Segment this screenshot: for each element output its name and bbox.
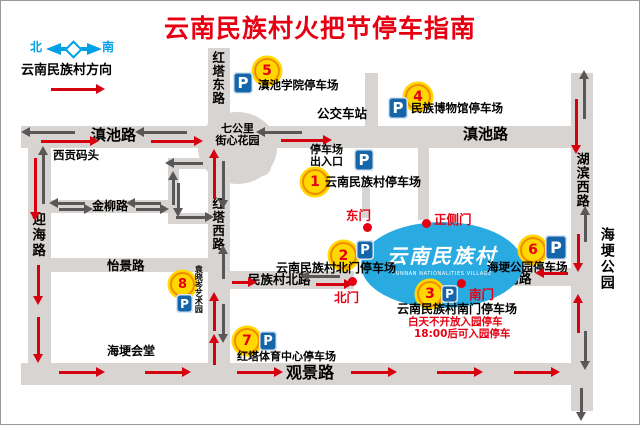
arrow-west-icon (308, 275, 340, 278)
roundabout-label: 七公里 街心花园 (198, 123, 277, 146)
arrow-north-icon (584, 214, 587, 242)
landmark-bus-station: 公交车站 (317, 107, 367, 120)
front-gate-label: 正侧门 (434, 213, 472, 226)
parking-1-label: 云南民族村停车场 (325, 176, 421, 189)
arrow-east-icon (316, 283, 345, 286)
parking-2-icon: P (356, 240, 374, 260)
arrow-north-icon (172, 179, 175, 205)
arrow-south-icon (222, 161, 225, 201)
direction-arrow-icon (51, 88, 97, 91)
parking-7-label: 红塔体育中心停车场 (237, 351, 336, 363)
parking-4-icon: P (388, 97, 408, 119)
arrow-south-icon (37, 317, 40, 355)
arrow-north-icon (222, 253, 225, 279)
arrow-east-icon (281, 139, 324, 142)
road-label-hubin-west: 湖滨西路 (574, 152, 588, 208)
parking-3-label: 云南民族村南门停车场 (397, 303, 517, 316)
parking-3-note1: 白天不开放入园停车 (408, 317, 503, 328)
compass-south-label: 南 (102, 41, 114, 54)
parking-4-label: 民族博物馆停车场 (411, 102, 503, 114)
arrow-west-icon (29, 131, 75, 134)
road-label-guanjing: 观景路 (286, 365, 334, 382)
arrow-south-icon (34, 158, 37, 213)
landmark-xigong-wharf: 西贡码头 (53, 149, 99, 161)
arrow-east-icon (136, 208, 161, 211)
arrow-west-icon (57, 202, 85, 205)
arrow-west-icon (264, 131, 302, 134)
landmark-haigeng-park: 海埂公园 (599, 227, 614, 291)
arrow-west-icon (173, 162, 203, 165)
landmark-parking-entrance: 停车场 出入口 (310, 144, 343, 167)
arrow-west-icon (143, 131, 187, 134)
roundabout-spur (252, 157, 271, 176)
arrow-south-icon (584, 331, 587, 362)
entrance-parking-icon: P (354, 149, 374, 171)
arrow-west-icon (543, 272, 568, 275)
arrow-north-icon (583, 78, 586, 119)
east-gate-dot (363, 223, 372, 232)
arrow-east-icon (514, 371, 552, 374)
compass-north-label: 北 (30, 41, 42, 54)
road-label-jinliu: 金柳路 (92, 200, 128, 213)
page-title: 云南民族村火把节停车指南 (1, 9, 639, 45)
parking-guide-map: 云南民族村火把节停车指南 北 南 云南民族村方向 滇池路 滇池路 红塔东路 红塔… (0, 0, 640, 425)
parking-5-label: 滇池学院停车场 (258, 79, 339, 91)
arrow-north-icon (213, 342, 216, 365)
arrow-south-icon (222, 304, 225, 335)
parking-8-icon: P (176, 294, 193, 313)
road-label-yijing: 怡景路 (107, 259, 145, 272)
north-gate-label: 北门 (334, 291, 359, 304)
arrow-east-icon (151, 140, 195, 143)
arrow-east-icon (351, 371, 389, 374)
road-label-hongta-east: 红塔东路 (211, 51, 224, 105)
arrow-east-icon (59, 371, 97, 374)
arrow-south-icon (577, 234, 580, 264)
arrow-north-icon (213, 157, 216, 199)
arrow-east-icon (59, 208, 85, 211)
arrow-north-icon (213, 300, 216, 331)
parking-7-icon: P (259, 331, 277, 351)
arrow-east-icon (437, 371, 475, 374)
east-gate-label: 东门 (346, 209, 371, 222)
front-gate-dot (422, 219, 431, 228)
south-gate-label: 南门 (469, 288, 494, 301)
south-gate-dot (457, 279, 466, 288)
compass-arrow-east-icon (87, 43, 102, 55)
village-direction-label: 云南民族村方向 (21, 64, 112, 78)
parking-5-icon: P (233, 72, 253, 94)
arrow-east-icon (232, 281, 249, 284)
arrow-south-icon (177, 183, 180, 209)
arrow-west-icon (134, 202, 161, 205)
parking-2-label: 云南民族村北门停车场 (276, 262, 396, 275)
arrow-south-icon (575, 99, 578, 146)
arrow-east-icon (145, 371, 183, 374)
arrow-north-icon (42, 154, 45, 204)
parking-6-icon: P (545, 235, 567, 260)
arrow-east-icon (41, 140, 91, 143)
arrow-east-icon (176, 216, 206, 219)
road-label-dianchi-east: 滇池路 (463, 127, 508, 143)
arrow-east-icon (237, 371, 275, 374)
parking-3-note2: 18:00后可入园停车 (414, 329, 510, 340)
arrow-south-icon (37, 265, 40, 297)
parking-8-label: 袁晓岑艺术园 (194, 265, 202, 313)
arrow-north-icon (577, 302, 580, 333)
landmark-haigeng-hall: 海埂会堂 (107, 345, 155, 358)
parking-3-icon: P (441, 285, 458, 303)
arrow-south-icon (580, 388, 583, 413)
